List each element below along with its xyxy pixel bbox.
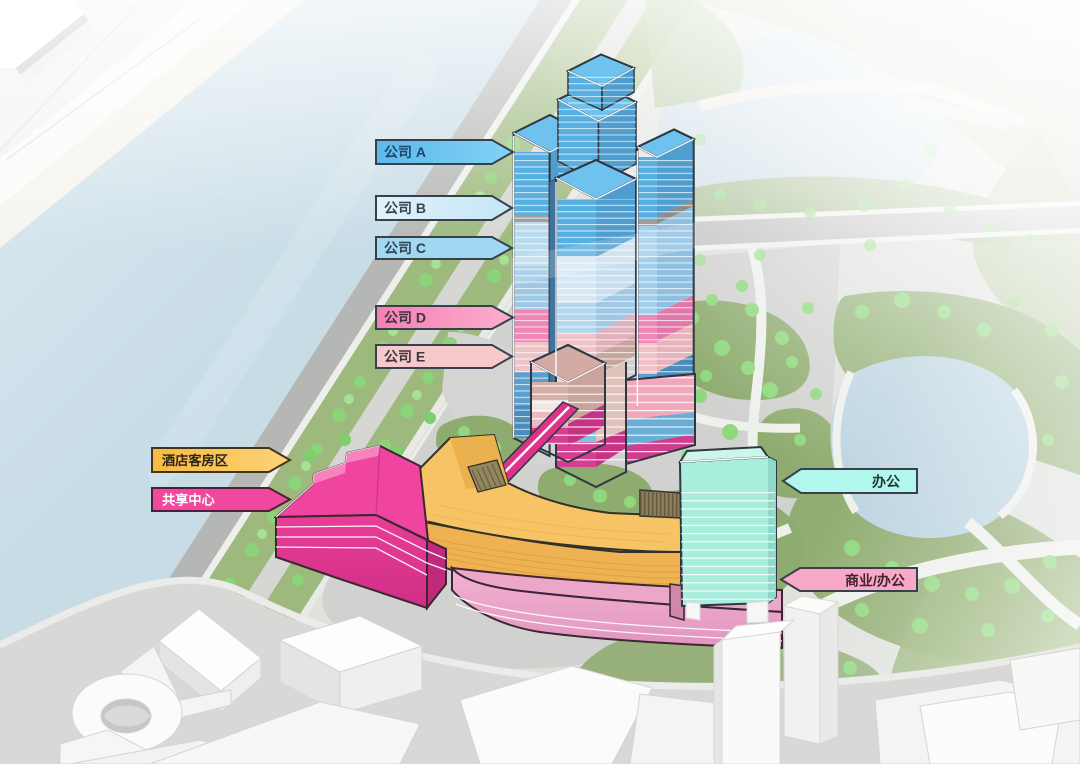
svg-text:酒店客房区: 酒店客房区: [162, 452, 228, 468]
svg-text:公司 E: 公司 E: [384, 349, 425, 365]
svg-text:商业/办公: 商业/办公: [845, 573, 905, 589]
svg-text:共享中心: 共享中心: [162, 492, 216, 508]
svg-text:办公: 办公: [872, 474, 900, 490]
svg-text:公司 C: 公司 C: [384, 240, 426, 256]
svg-text:公司 D: 公司 D: [384, 310, 426, 326]
svg-text:公司 A: 公司 A: [384, 144, 426, 160]
svg-text:公司 B: 公司 B: [384, 200, 426, 216]
